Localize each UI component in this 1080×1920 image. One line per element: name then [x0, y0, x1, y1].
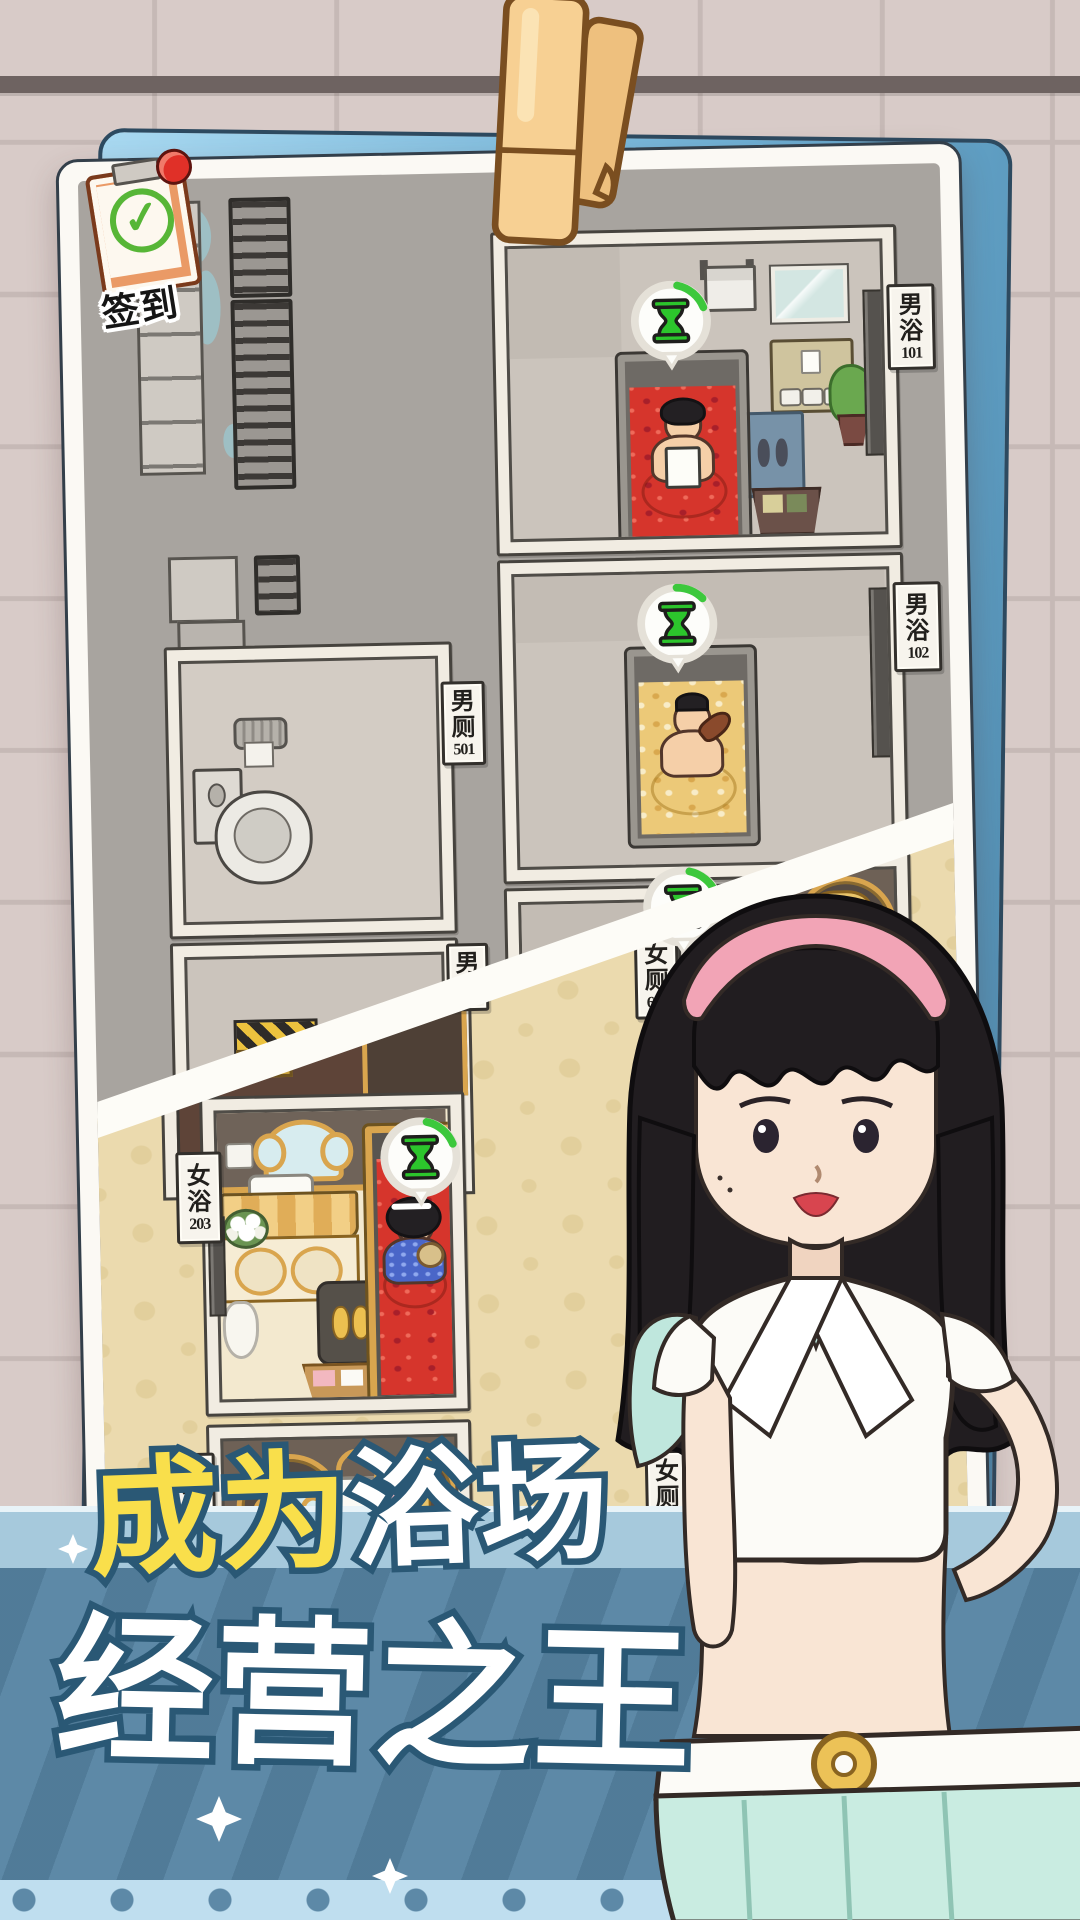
bathing-girl — [379, 1206, 445, 1299]
plaque-male-toilet-501: 男 厕 501 — [440, 681, 486, 766]
plaque-female-bath-203: 女 浴 203 — [175, 1151, 223, 1244]
skirt — [656, 1784, 1080, 1920]
sliding-door — [869, 587, 893, 757]
sink-cabinet — [168, 556, 239, 623]
plaque-male-bath-102: 男 浴 102 — [892, 581, 942, 672]
timer-hourglass-icon[interactable] — [377, 1113, 465, 1215]
room-male-toilet-501[interactable] — [164, 641, 458, 939]
vase-stool — [222, 1301, 259, 1360]
timer-hourglass-icon[interactable] — [633, 580, 721, 682]
locker-grille — [228, 197, 292, 298]
sparkle-icon — [372, 1858, 408, 1894]
locker-grille — [230, 299, 296, 490]
sparkle-icon — [58, 1534, 88, 1564]
room-male-bath-101[interactable] — [490, 224, 903, 556]
vent-grille — [254, 555, 301, 616]
timer-hourglass-icon[interactable] — [627, 277, 715, 379]
bath-mat — [742, 411, 806, 498]
clothespin-icon — [455, 0, 672, 267]
sliding-door — [862, 289, 885, 455]
checkin-badge[interactable]: ✓ 签到 — [76, 146, 215, 320]
bath-red-man[interactable] — [618, 352, 750, 542]
plaque-male-bath-101: 男 浴 101 — [886, 283, 936, 370]
toilet-bowl — [214, 789, 314, 885]
bathing-man-eating — [657, 699, 723, 792]
tagline-line1: 成为浴场 — [88, 1439, 612, 1585]
toilet-paper-holder — [233, 717, 282, 764]
mirror — [771, 265, 848, 323]
towel-roll — [225, 1143, 254, 1170]
eye-right — [853, 1119, 879, 1153]
sparkle-icon — [196, 1796, 242, 1842]
lux-towel-basket — [302, 1362, 381, 1402]
tagline-line1-rest: 浴场 — [348, 1431, 613, 1583]
tagline-line2: 经营之王 — [54, 1611, 693, 1782]
towel-basket — [751, 487, 822, 536]
bathing-man-reading — [648, 404, 714, 497]
game-ad-screenshot: 男 浴 101 男 浴 102 男 厕 501 男 厕 — [0, 0, 1080, 1920]
wall-shadow — [507, 247, 621, 359]
tagline-line1-highlight: 成为 — [88, 1440, 353, 1592]
eye-left — [753, 1119, 779, 1153]
